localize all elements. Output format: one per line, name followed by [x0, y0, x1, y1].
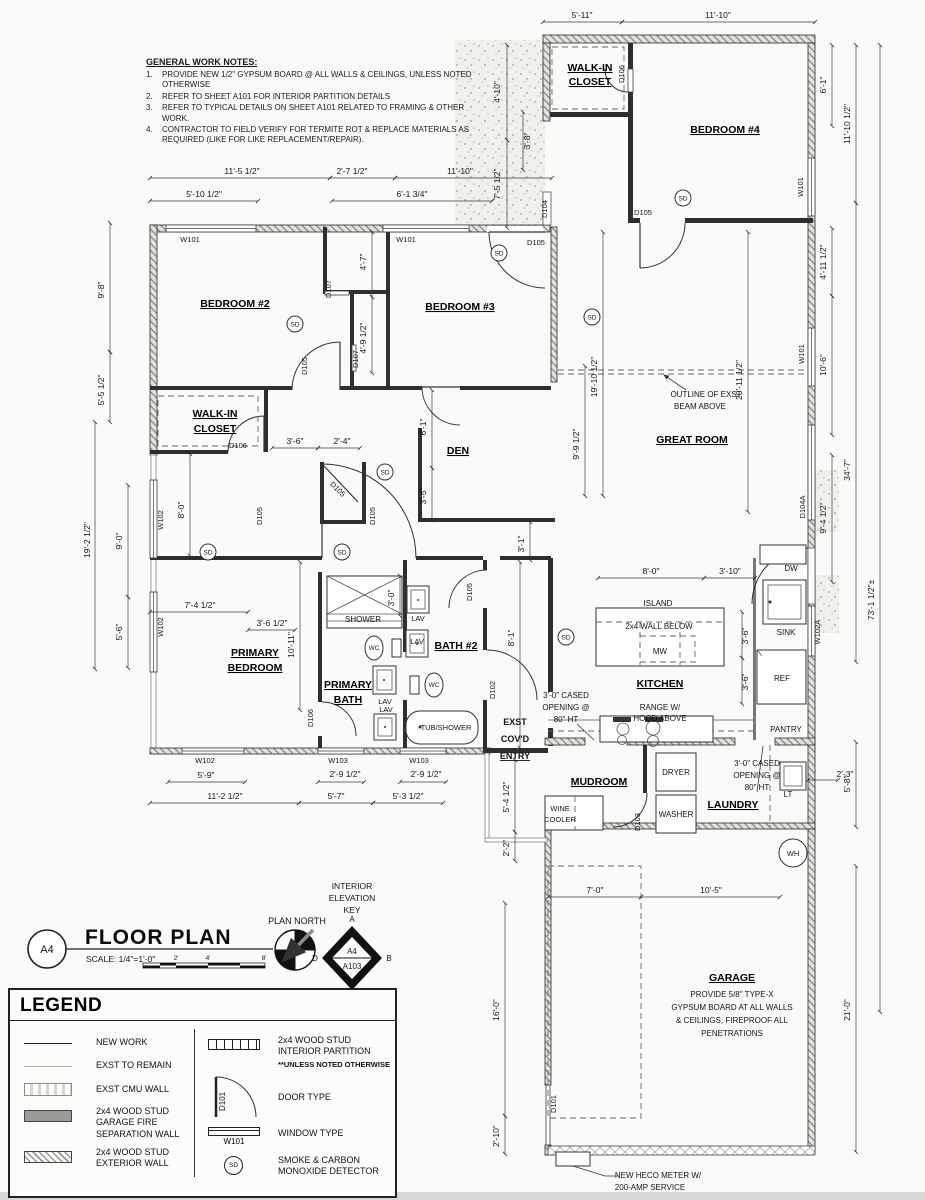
- door-tag: D104: [540, 200, 549, 218]
- window-w103: [318, 748, 364, 754]
- dim-label: 5'-3 1/2": [392, 791, 423, 801]
- dim-label: 8'-0": [643, 566, 660, 576]
- garage-note: PENETRATIONS: [701, 1029, 763, 1038]
- dim-label: 3'-8": [522, 133, 532, 150]
- dim-label: 10'-11": [286, 632, 296, 658]
- range-note: RANGE W/: [640, 703, 681, 712]
- window-w102: [182, 748, 244, 754]
- dim-label: 10'-6": [818, 354, 828, 376]
- dw-label: DW: [784, 564, 798, 573]
- lt-label: LT: [784, 790, 793, 799]
- cased-opening-note: OPENING @: [542, 703, 589, 712]
- sd-label: SD: [203, 550, 212, 557]
- dim-label: 9'-8": [96, 282, 106, 299]
- beam-note: BEAM ABOVE: [674, 402, 726, 411]
- tub-label: TUB/SHOWER: [421, 723, 472, 732]
- door-tag: D104A: [798, 496, 807, 519]
- legend-item-label: EXST TO REMAIN: [96, 1060, 191, 1071]
- door-tag: D105: [368, 507, 377, 525]
- exterior-wall-icon: [24, 1151, 72, 1163]
- dim-label: 4'-9 1/2": [358, 322, 368, 353]
- dim-label: 5'-10 1/2": [186, 189, 222, 199]
- dim-label: 5'-4 1/2": [501, 781, 511, 812]
- door-tag: D105: [634, 208, 652, 217]
- dim-label: 5'-9": [198, 770, 215, 780]
- legend-item-label: DOOR TYPE: [278, 1092, 390, 1103]
- room-label-walkin-closet: CLOSET: [194, 423, 237, 435]
- scale-tick: 4': [206, 955, 211, 962]
- door-tag: D105: [328, 480, 347, 499]
- dim-label: 5'-6": [114, 624, 124, 641]
- heco-meter: [556, 1152, 618, 1176]
- dim-label: 8'-0": [176, 502, 186, 519]
- dim-label: 21'-0": [842, 999, 852, 1021]
- door-tag: D107: [324, 280, 333, 298]
- exst-line-icon: [24, 1066, 72, 1067]
- cased-opening-note: 80" HT: [745, 783, 770, 792]
- window-tag: W103: [328, 756, 348, 765]
- dim-label: 73'-1 1/2"±: [866, 579, 876, 620]
- dim-label: 6'-1 3/4": [396, 189, 427, 199]
- sheet-ref: A4: [40, 944, 53, 956]
- dim-label: 10'-5": [700, 885, 722, 895]
- room-label-great-room: GREAT ROOM: [656, 434, 728, 446]
- lav-label: LAV: [379, 705, 393, 714]
- sd-legend-icon: SD: [224, 1156, 243, 1175]
- door-tag: D105: [527, 238, 545, 247]
- dim-label: 3'-6": [287, 436, 304, 446]
- elev-key-sheet: A103: [343, 962, 362, 971]
- window-tag: W101: [796, 177, 805, 197]
- kitchen-sink: [763, 580, 806, 624]
- range-note: HOOD ABOVE: [633, 714, 686, 723]
- sd-label: SD: [337, 550, 346, 557]
- interior-partition-icon: [208, 1039, 260, 1050]
- room-label-laundry: LAUNDRY: [708, 799, 759, 811]
- dim-label: 2'-9 1/2": [410, 769, 441, 779]
- dim-label: 9'-0": [114, 533, 124, 550]
- door-tag: D102: [488, 681, 497, 699]
- dim-label: 7'-4 1/2": [184, 600, 215, 610]
- door-tag: D106: [306, 709, 315, 727]
- cased-opening-note: 3'-0" CASED: [543, 691, 589, 700]
- dim-label: 5'-7": [328, 791, 345, 801]
- dishwasher: [760, 545, 806, 564]
- dim-label: 3'-6": [740, 674, 750, 691]
- dim-label: 2'-2": [501, 840, 511, 857]
- wine-cooler: [545, 796, 603, 830]
- dim-label: 11'-5 1/2": [224, 166, 259, 176]
- note-number: 3.: [146, 103, 162, 124]
- elev-key-point: B: [386, 954, 391, 963]
- room-label-walkin-closet: CLOSET: [569, 76, 612, 88]
- shower-label: SHOWER: [345, 615, 381, 624]
- room-label-entry: ENTRY: [500, 751, 530, 761]
- sd-label: SD: [380, 470, 389, 477]
- dim-label: 2'-7 1/2": [336, 166, 367, 176]
- smoke-detectors: SD SD SD SD SD SD SD SD: [200, 190, 691, 645]
- door-tag: D105: [465, 583, 474, 601]
- door-tag: D105: [255, 507, 264, 525]
- window-tag: W101: [396, 235, 416, 244]
- window-w101: [383, 225, 469, 232]
- sd-icon: SD: [675, 190, 691, 206]
- legend-item-label: SMOKE & CARBON MONOXIDE DETECTOR: [278, 1155, 394, 1178]
- room-label-walkin-closet: WALK-IN: [568, 62, 613, 74]
- dim-label: 11'-10": [705, 10, 731, 20]
- dim-label: 8'-1": [506, 630, 516, 647]
- legend-title: LEGEND: [10, 990, 395, 1021]
- beam-note: OUTLINE OF EXST: [670, 390, 741, 399]
- legend-panel: LEGEND NEW WORK EXST TO REMAIN EXST CMU …: [8, 988, 397, 1198]
- cmu-wall-icon: [24, 1083, 72, 1096]
- room-label-bedroom2: BEDROOM #2: [200, 298, 270, 310]
- general-work-notes: GENERAL WORK NOTES: 1.PROVIDE NEW 1/2" G…: [146, 57, 481, 147]
- sink-lav: [407, 586, 429, 613]
- window-type-icon: [208, 1127, 260, 1136]
- window-w101: [166, 225, 256, 232]
- dim-label: 11'-10": [447, 166, 473, 176]
- scale-bar: 2' 4' 8': [143, 955, 266, 968]
- door-tag: D103: [633, 813, 642, 831]
- dim-label: 19'-2 1/2": [82, 522, 92, 558]
- new-work-line-icon: [24, 1043, 72, 1044]
- sd-label: SD: [494, 251, 503, 258]
- dim-label: 5'-5 1/2": [96, 374, 106, 405]
- sd-label: SD: [290, 322, 299, 329]
- washer-label: WASHER: [659, 810, 694, 819]
- window-tag: W103: [409, 756, 429, 765]
- dim-label: 3'-0": [386, 590, 396, 607]
- legend-item-label: 2x4 WOOD STUD INTERIOR PARTITION: [278, 1035, 390, 1058]
- lav-label: LAV: [411, 614, 425, 623]
- dim-label: 6'-1": [418, 419, 428, 436]
- sd-label: SD: [587, 315, 596, 322]
- drawing-title: FLOOR PLAN: [85, 926, 232, 949]
- room-label-bedroom4: BEDROOM #4: [690, 124, 760, 136]
- window-tag: W101: [797, 344, 806, 364]
- room-label-garage: GARAGE: [709, 972, 755, 984]
- room-label-primary-bath: PRIMARY: [324, 679, 372, 691]
- title-block: A4 FLOOR PLAN SCALE: 1/4"=1'-0" 2' 4' 8'…: [28, 881, 392, 1002]
- notes-title: GENERAL WORK NOTES:: [146, 57, 481, 67]
- dim-label: 2'-9 1/2": [329, 769, 360, 779]
- legend-item-label: 2x4 WOOD STUD GARAGE FIRE SEPARATION WAL…: [96, 1106, 191, 1140]
- door-type-icon: D101: [208, 1073, 260, 1123]
- window-w101: [808, 158, 815, 216]
- dim-label: 16'-0": [491, 999, 501, 1021]
- room-label-bath2: BATH #2: [435, 640, 478, 652]
- room-label-bedroom3: BEDROOM #3: [425, 301, 495, 313]
- dim-label: 6'-1": [818, 77, 828, 94]
- room-label-entry: COV'D: [501, 734, 530, 744]
- dim-label: 2'-10": [491, 1125, 501, 1147]
- room-label-kitchen: KITCHEN: [637, 678, 684, 690]
- window-tag: W102: [156, 617, 165, 637]
- note-number: 1.: [146, 70, 162, 91]
- elev-key-heading: KEY: [343, 905, 360, 915]
- dim-label: 4'-7": [358, 254, 368, 271]
- sink-lav: [373, 666, 396, 694]
- dim-label: 3'-6": [740, 628, 750, 645]
- dim-label: 11'-2 1/2": [207, 791, 242, 801]
- room-label-primary-bath: BATH: [334, 694, 362, 706]
- sd-icon: SD: [334, 544, 350, 560]
- note-number: 4.: [146, 125, 162, 146]
- room-label-entry: EXST: [503, 717, 527, 727]
- exst-cmu-patches: [455, 40, 839, 633]
- room-label-primary-bedroom: PRIMARY: [231, 647, 279, 659]
- wine-cooler-label: COOLER: [544, 815, 576, 824]
- scale-tick: 2': [174, 955, 179, 962]
- interior-elevation-key: INTERIOR ELEVATION KEY A4 A103 A B C D: [312, 881, 392, 1002]
- wall-below-note: 2x4 WALL BELOW: [625, 622, 693, 631]
- plan-north-label: PLAN NORTH: [268, 916, 326, 926]
- pantry-label: PANTRY: [770, 725, 802, 734]
- note-number: 2.: [146, 92, 162, 102]
- room-label-primary-bedroom: BEDROOM: [228, 662, 283, 674]
- dim-label: 9'-4 1/2": [818, 502, 828, 533]
- legend-item-label: NEW WORK: [96, 1037, 191, 1048]
- elev-key-point: D: [312, 954, 318, 963]
- scale-tick: 8': [262, 955, 267, 962]
- sink-lav: [374, 714, 396, 740]
- window-tag: W102A: [813, 620, 822, 645]
- wc-label: WC: [429, 682, 440, 689]
- door-tag: D101: [549, 1095, 558, 1113]
- dryer-label: DRYER: [662, 768, 690, 777]
- door-tag: D105: [300, 357, 309, 375]
- dim-label: 3'-6 1/2": [256, 618, 287, 628]
- legend-item-label: 2x4 WOOD STUD EXTERIOR WALL: [96, 1147, 191, 1170]
- window-w101: [808, 328, 815, 386]
- dim-label: 4'-10": [492, 81, 502, 103]
- room-label-den: DEN: [447, 445, 469, 457]
- sd-icon: SD: [584, 309, 600, 325]
- door-tag: D106: [229, 441, 247, 450]
- drawing-scale: SCALE: 1/4"=1'-0": [86, 954, 155, 964]
- dim-label: 11'-10 1/2": [842, 104, 852, 144]
- legend-divider: [194, 1029, 195, 1177]
- ref-label: REF: [774, 674, 790, 683]
- garage-note: & CEILINGS, FIREPROOF ALL: [676, 1016, 789, 1025]
- window-type-tag: W101: [208, 1137, 260, 1146]
- legend-item-note: **UNLESS NOTED OTHERWISE: [278, 1060, 394, 1069]
- cased-opening-note: OPENING @: [733, 771, 780, 780]
- lav-label: LAV: [410, 637, 424, 646]
- window-tag: W101: [180, 235, 200, 244]
- room-label-mudroom: MUDROOM: [571, 776, 628, 788]
- elev-key-heading: INTERIOR: [332, 881, 373, 891]
- cased-opening-note: 3'-0" CASED: [734, 759, 780, 768]
- note-item: CONTRACTOR TO FIELD VERIFY FOR TERMITE R…: [162, 125, 481, 146]
- legend-item-label: EXST CMU WALL: [96, 1084, 191, 1095]
- floor-plan-sheet: SD SD SD SD SD SD SD SD BEDROOM #2 BEDRO…: [0, 0, 925, 1200]
- microwave-label: MW: [653, 647, 668, 656]
- dim-label: 3'-10": [719, 566, 741, 576]
- window: [808, 425, 815, 520]
- kitchen-island: [596, 608, 724, 666]
- dim-label: 4'-11 1/2": [818, 244, 828, 279]
- sd-icon: SD: [287, 316, 303, 332]
- dim-label: 20'-11 1/2": [734, 360, 744, 400]
- dim-label: 7'-0": [587, 885, 604, 895]
- note-item: PROVIDE NEW 1/2" GYPSUM BOARD @ ALL WALL…: [162, 70, 481, 91]
- elev-key-heading: ELEVATION: [329, 893, 375, 903]
- sd-label: SD: [561, 635, 570, 642]
- note-item: REFER TO SHEET A101 FOR INTERIOR PARTITI…: [162, 92, 481, 102]
- dim-label: 7'-5 1/2": [492, 168, 502, 199]
- sd-icon: SD: [377, 464, 393, 480]
- garage-note: PROVIDE 5/8" TYPE-X: [690, 990, 774, 999]
- sd-icon: SD: [558, 629, 574, 645]
- dim-label: 5'-8": [842, 776, 852, 793]
- dim-label: 3'-5": [418, 488, 428, 505]
- window-w103: [400, 748, 446, 754]
- wh-label: WH: [787, 849, 800, 858]
- fire-separation-wall-icon: [24, 1110, 72, 1122]
- window-tag: W102: [195, 756, 215, 765]
- dim-label: 3'-1": [516, 536, 526, 553]
- sd-icon: SD: [200, 544, 216, 560]
- sd-icon: SD: [491, 245, 507, 261]
- sd-label: SD: [678, 196, 687, 203]
- dim-label: 19'-10 1/2": [589, 357, 599, 398]
- elev-key-point: A: [349, 915, 355, 924]
- laundry-tub: [780, 762, 806, 790]
- elev-key-sheet: A4: [347, 947, 357, 956]
- dim-label: 2'-4": [334, 436, 351, 446]
- cased-opening-note: 80" HT: [554, 715, 579, 724]
- sink-label: SINK: [777, 628, 796, 637]
- dim-label: 9'-9 1/2": [571, 428, 581, 459]
- wc-label: WC: [369, 645, 380, 652]
- window-tag: W102: [156, 510, 165, 530]
- dim-label: 5'-11": [571, 10, 592, 20]
- note-item: REFER TO TYPICAL DETAILS ON SHEET A101 R…: [162, 103, 481, 124]
- island-label: ISLAND: [644, 599, 673, 608]
- heco-note: NEW HECO METER W/: [615, 1171, 702, 1180]
- heco-note: 200-AMP SERVICE: [615, 1183, 685, 1192]
- door-type-tag: D101: [218, 1091, 227, 1111]
- garage-note: GYPSUM BOARD AT ALL WALLS: [671, 1003, 792, 1012]
- door-tag: D106: [617, 65, 626, 83]
- dim-label: 34'-7": [842, 459, 852, 481]
- room-label-walkin-closet: WALK-IN: [193, 408, 238, 420]
- legend-item-label: WINDOW TYPE: [278, 1128, 390, 1139]
- wine-cooler-label: WINE: [550, 804, 570, 813]
